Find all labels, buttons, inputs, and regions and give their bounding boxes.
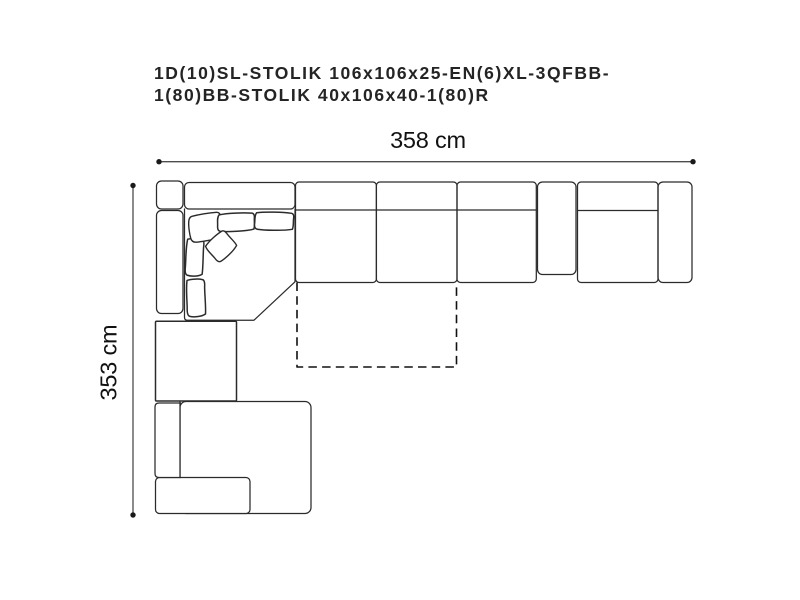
- svg-text:353 cm: 353 cm: [96, 325, 122, 401]
- svg-text:358 cm: 358 cm: [390, 127, 466, 153]
